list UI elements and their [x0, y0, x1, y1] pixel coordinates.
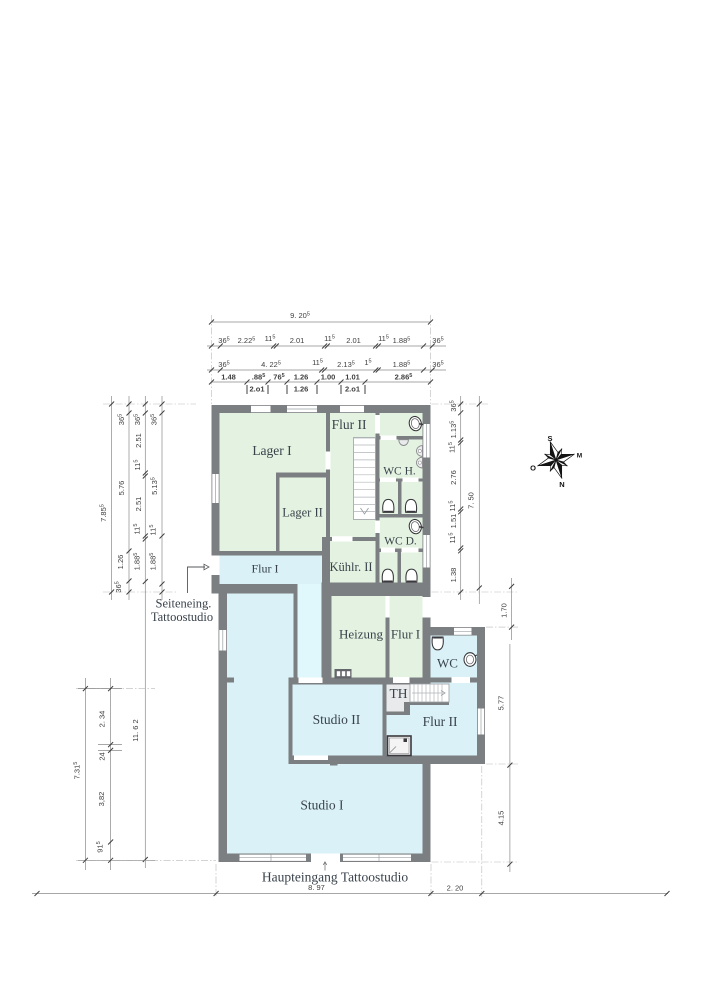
svg-text:TH: TH: [390, 686, 408, 701]
svg-text:1.26: 1.26: [294, 373, 309, 382]
svg-text:Tattoostudio: Tattoostudio: [151, 610, 213, 624]
svg-text:Flur II: Flur II: [332, 417, 367, 432]
svg-text:Heizung: Heizung: [339, 627, 384, 642]
svg-text:WC: WC: [437, 656, 458, 671]
svg-text:24: 24: [98, 752, 107, 760]
svg-text:Lager II: Lager II: [282, 506, 323, 520]
svg-text:3,82: 3,82: [97, 792, 106, 807]
svg-text:M: M: [577, 453, 582, 460]
svg-text:1.51: 1.51: [449, 514, 458, 529]
svg-text:11. 6 2: 11. 6 2: [131, 719, 140, 741]
svg-text:2. 34: 2. 34: [98, 711, 107, 728]
svg-text:2.o1: 2.o1: [345, 385, 360, 394]
svg-text:1.26: 1.26: [294, 385, 309, 394]
svg-text:Flur I: Flur I: [252, 562, 279, 576]
svg-text:Kühlr. II: Kühlr. II: [329, 560, 372, 574]
svg-text:WC H.: WC H.: [383, 466, 416, 478]
svg-text:2.01: 2.01: [290, 336, 305, 345]
svg-text:7. 50: 7. 50: [467, 492, 476, 509]
svg-text:5.76: 5.76: [117, 481, 126, 496]
svg-text:Seiteneing.: Seiteneing.: [156, 597, 212, 611]
svg-text:N: N: [559, 480, 564, 489]
svg-text:Flur I: Flur I: [391, 627, 420, 642]
svg-text:1.38: 1.38: [449, 568, 458, 583]
svg-text:8. 97: 8. 97: [308, 883, 325, 892]
svg-text:Haupteingang Tattoostudio: Haupteingang Tattoostudio: [262, 870, 408, 885]
svg-text:1.00: 1.00: [321, 373, 336, 382]
svg-text:2.01: 2.01: [346, 336, 361, 345]
svg-text:5.77: 5.77: [497, 696, 506, 711]
svg-text:WC D.: WC D.: [384, 536, 417, 548]
svg-text:2. 20: 2. 20: [447, 884, 464, 893]
svg-text:2.51: 2.51: [134, 433, 143, 448]
svg-text:Lager I: Lager I: [252, 443, 292, 458]
svg-text:2.76: 2.76: [449, 470, 458, 485]
svg-text:Studio II: Studio II: [313, 712, 361, 727]
svg-text:O: O: [530, 464, 536, 473]
svg-text:1.26: 1.26: [116, 555, 125, 570]
svg-text:2.51: 2.51: [134, 497, 143, 512]
svg-text:1.01: 1.01: [345, 373, 360, 382]
svg-text:1.70: 1.70: [500, 603, 509, 618]
svg-text:Studio I: Studio I: [300, 798, 344, 813]
svg-text:4.15: 4.15: [497, 811, 506, 826]
svg-text:2.o1: 2.o1: [249, 385, 264, 394]
svg-text:Flur II: Flur II: [423, 714, 458, 729]
svg-text:S: S: [547, 434, 552, 443]
svg-text:1.48: 1.48: [221, 373, 236, 382]
